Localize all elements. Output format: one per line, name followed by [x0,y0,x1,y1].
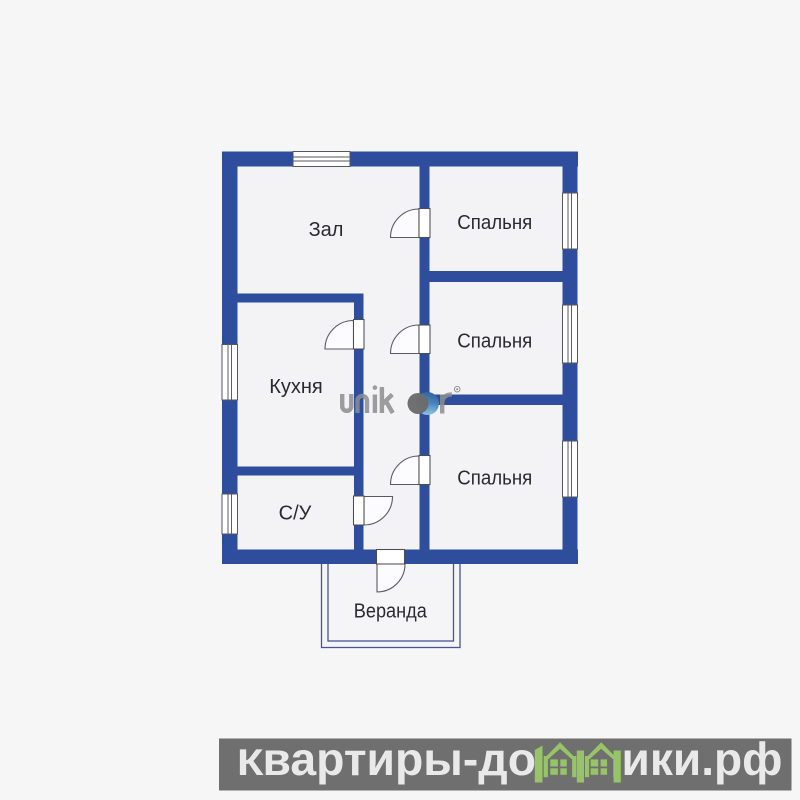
svg-text:Кухня: Кухня [269,376,323,398]
svg-text:К: К [237,741,264,783]
svg-text:ики.рф: ики.рф [622,733,783,785]
svg-text:вартиры-до: вартиры-до [263,733,537,785]
svg-text:С/У: С/У [279,503,312,525]
svg-text:Спальня: Спальня [457,330,532,352]
svg-text:Зал: Зал [309,219,344,241]
svg-text:Веранда: Веранда [354,601,428,623]
svg-text:Спальня: Спальня [457,212,532,234]
svg-text:Спальня: Спальня [457,468,532,490]
